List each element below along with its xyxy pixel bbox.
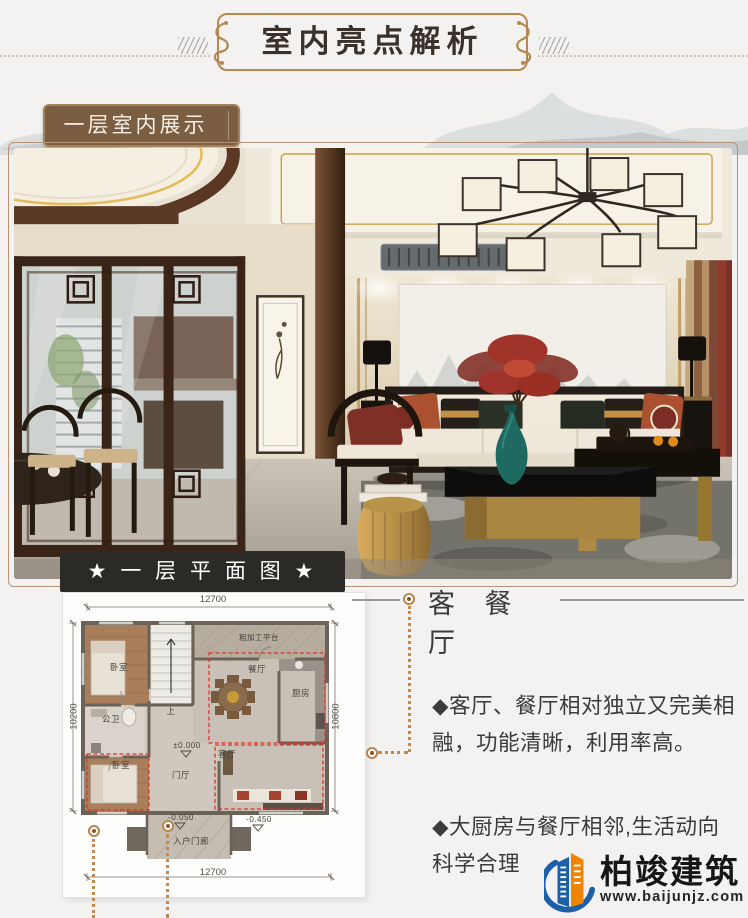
plan-level-living: -0.450: [239, 815, 279, 824]
plan-dim-right: 10800: [331, 692, 342, 742]
plan-room-hall: 门厅: [165, 769, 197, 781]
plan-room-bedroom1: 卧室: [99, 661, 139, 673]
poster-page: 室内亮点解析 一层室内展示: [0, 0, 748, 918]
callout-title: 客 餐 厅: [428, 582, 568, 660]
section-label-text: 一层室内展示: [45, 106, 238, 145]
callout-dot-bottom-center: [162, 820, 174, 832]
plan-room-bedroom2: 卧室: [105, 759, 137, 771]
plan-room-bath: 公卫: [95, 713, 127, 725]
scroll-ornament-left-icon: [206, 20, 232, 66]
plan-dim-left: 10200: [69, 692, 80, 742]
brand-logo: 柏竣建筑 www.baijunjz.com: [544, 845, 746, 915]
plan-room-living: 客厅: [211, 748, 243, 760]
callout-dotted-line-center: [166, 834, 169, 918]
callout-title-line-left: [352, 599, 400, 601]
note-item-1: ◆客厅、餐厅相对独立又完美相融，功能清晰，利用率高。: [432, 688, 738, 762]
plan-level-zero: ±0.000: [165, 741, 209, 750]
plan-room-dining: 餐厅: [241, 663, 273, 675]
living-room-photo: [14, 148, 732, 579]
callout-dot-bottom-left: [88, 825, 100, 837]
callout-dot-plan-edge: [366, 747, 378, 759]
scroll-ornament-right-icon: [513, 20, 539, 66]
callout-dot-title: [403, 593, 415, 605]
floor-plan-banner: ★ 一 层 平 面 图 ★: [60, 551, 345, 592]
floor-plan-drawing: [63, 593, 367, 899]
plan-room-stairs: 上: [163, 705, 179, 717]
logo-text-block: 柏竣建筑 www.baijunjz.com: [600, 855, 744, 906]
plan-dim-bottom: 12700: [173, 867, 253, 878]
plan-dim-top: 12700: [173, 594, 253, 605]
plan-room-porch: 入户门廊: [161, 835, 221, 847]
page-title-frame: 室内亮点解析: [217, 13, 528, 71]
section-label-plaque: 一层室内展示: [43, 104, 240, 147]
living-room-illustration: [14, 148, 732, 579]
logo-name: 柏竣建筑: [600, 855, 744, 890]
callout-dotted-line-horizontal: [378, 751, 408, 754]
plan-room-platform: 粗加工平台: [227, 632, 291, 643]
logo-website: www.baijunjz.com: [600, 889, 744, 905]
floor-plan-card: 12700 12700 10200 10800 卧室 上 粗加工平台 餐厅 厨房…: [62, 592, 366, 898]
plan-room-kitchen: 厨房: [285, 687, 317, 699]
callout-dotted-line-vertical: [408, 606, 411, 752]
callout-title-line-right: [560, 599, 744, 601]
logo-building-icon: [544, 847, 596, 913]
page-title: 室内亮点解析: [219, 15, 526, 69]
callout-dotted-line-left: [92, 839, 95, 918]
